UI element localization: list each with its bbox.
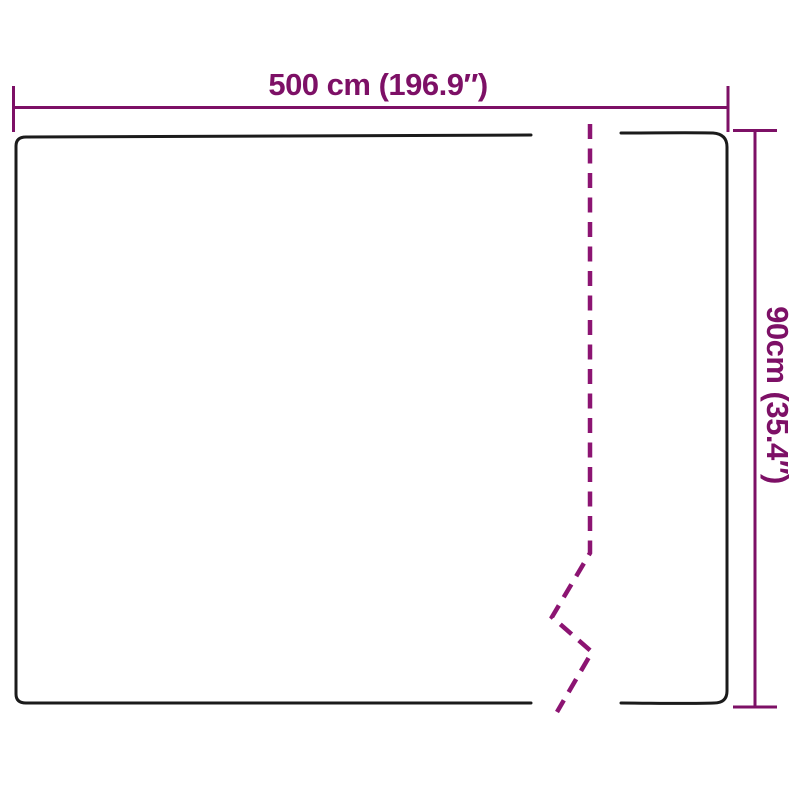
panel-outline-right-section bbox=[621, 133, 727, 704]
diagram-canvas bbox=[0, 0, 800, 800]
break-line bbox=[552, 124, 592, 712]
product-dimension-diagram: 500 cm (196.9″) 90cm (35.4″) bbox=[0, 0, 800, 800]
height-dimension-label: 90cm (35.4″) bbox=[760, 306, 794, 484]
panel-outline-left-section bbox=[16, 135, 531, 704]
width-dimension-label: 500 cm (196.9″) bbox=[20, 68, 736, 102]
